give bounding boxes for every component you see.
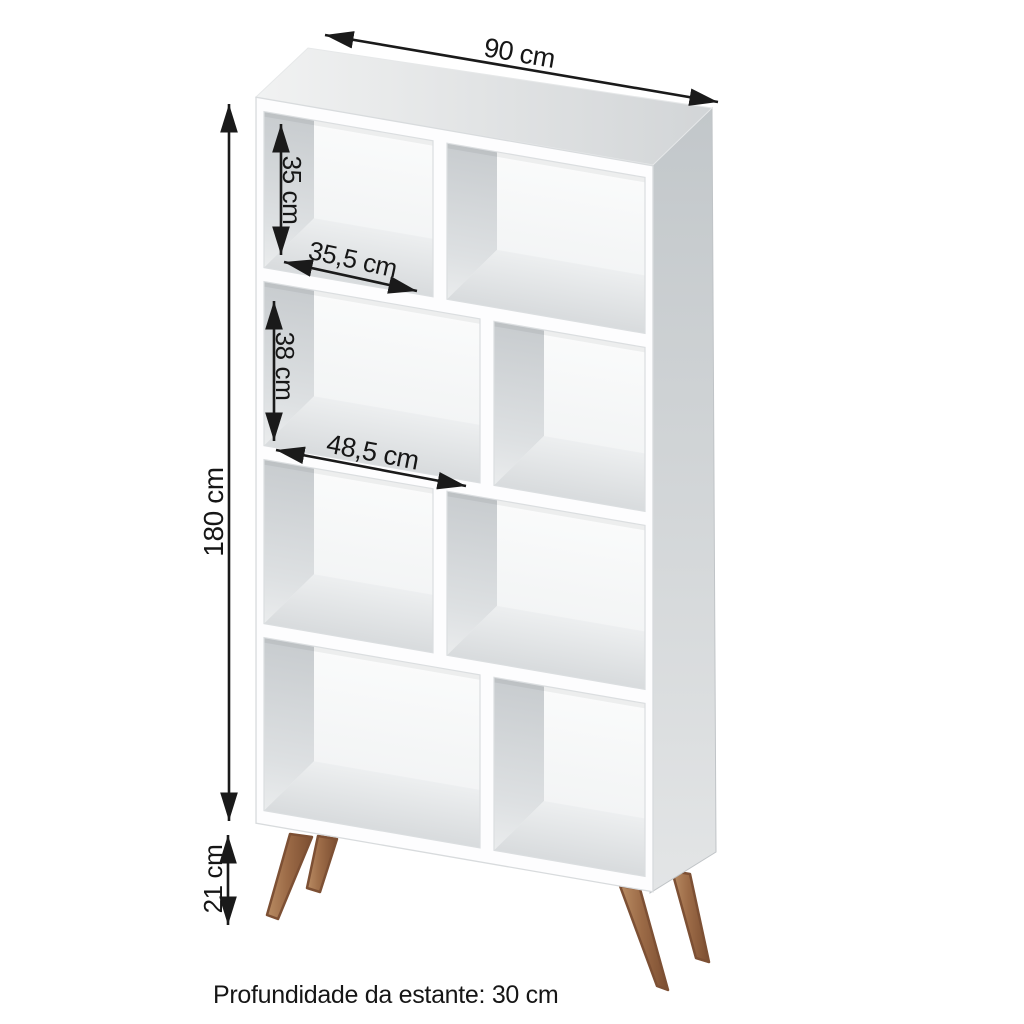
furniture-dimension-diagram: 90 cm 180 cm 21 cm 35 cm 35,5 cm 38 cm 4… <box>0 0 1024 1024</box>
bookshelf-diagram-canvas: 90 cm 180 cm 21 cm 35 cm 35,5 cm 38 cm 4… <box>0 0 1024 1024</box>
cabinet-front-face <box>256 97 653 892</box>
cabinet-right-side-panel <box>650 108 716 893</box>
leg-height-dimension-label: 21 cm <box>198 845 228 914</box>
compartment-row3-left <box>264 460 433 653</box>
compartment-row4-right <box>494 677 645 876</box>
compartment-row2-right <box>494 321 645 511</box>
bookshelf-illustration <box>256 48 716 990</box>
height-dimension-label: 180 cm <box>198 467 229 556</box>
compartment-row4-left <box>264 638 480 848</box>
depth-note: Profundidade da estante: 30 cm <box>213 981 558 1009</box>
large-compartment-height-label: 38 cm <box>270 332 300 401</box>
compartment-row1-right <box>447 143 645 333</box>
leg-height-dimension: 21 cm <box>198 835 228 925</box>
small-compartment-height-label: 35 cm <box>277 156 307 225</box>
compartment-row3-right <box>447 491 645 689</box>
